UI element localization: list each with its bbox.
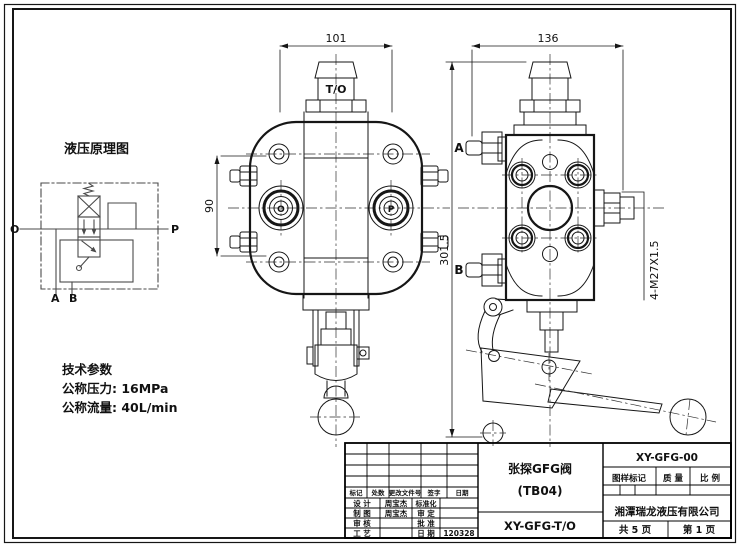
front-top-port-label: T/O	[326, 83, 347, 96]
technical-parameters: 技术参数 公称压力: 16MPa 公称流量: 40L/min	[62, 362, 178, 415]
product-name: 张探GFG阀	[508, 461, 572, 476]
sheet-total: 共 5 页	[619, 524, 652, 536]
side-port-b-label: B	[454, 263, 463, 277]
schematic-port-b-label: B	[69, 292, 77, 305]
schematic-port-o-label: O	[10, 223, 19, 236]
doc-number: XY-GFG-00	[636, 452, 698, 464]
front-dim-width-label: 101	[326, 32, 347, 45]
staff-date-label: 日 期	[417, 528, 435, 538]
side-port-a-label: A	[454, 141, 464, 155]
company-name: 湘潭瑞龙液压有限公司	[615, 505, 720, 518]
rev-col-date: 日期	[456, 488, 470, 497]
weight-label: 质 量	[663, 473, 683, 484]
product-model: (TB04)	[518, 484, 563, 498]
staff-verify-label: 审 定	[417, 508, 435, 518]
schematic-title: 液压原理图	[64, 141, 129, 157]
schematic-port-a-label: A	[51, 292, 60, 305]
side-thread-note: 4-M27X1.5	[648, 241, 661, 301]
staff-process-label: 工 艺	[353, 528, 371, 538]
drawing-frame	[5, 5, 736, 543]
rev-col-sign: 签字	[427, 488, 442, 497]
sheet-number: 第 1 页	[683, 524, 716, 536]
staff-design-label: 设 计	[353, 498, 371, 508]
staff-date-value: 120328	[443, 529, 474, 538]
rev-col-mark: 标记	[349, 488, 364, 497]
schematic-port-p-label: P	[171, 223, 179, 236]
front-port-o-label: O	[277, 205, 285, 215]
tech-title: 技术参数	[62, 362, 113, 377]
rev-col-count: 处数	[371, 488, 386, 497]
tech-flow: 公称流量: 40L/min	[62, 400, 178, 415]
side-dim-width-label: 136	[538, 32, 559, 45]
staff-draft-label: 制 图	[353, 508, 371, 518]
staff-design-name: 周宝杰	[385, 498, 408, 508]
drawing-canvas: 液压原理图 O P A B 技术参数 公称压力: 16MPa 公称流量: 40L…	[0, 0, 740, 547]
side-view: 136 301.5 A B	[438, 32, 716, 447]
front-port-p-label: P	[388, 205, 395, 215]
title-block: 标记 处数 更改文件号 签字 日期 设 计 周宝杰 标准化 制 图 周宝杰 审 …	[345, 443, 731, 538]
staff-standard-label: 标准化	[415, 499, 437, 508]
rev-col-change-doc: 更改文件号	[389, 488, 422, 497]
staff-approve-label: 批 准	[417, 518, 435, 528]
hydraulic-schematic: 液压原理图 O P A B	[10, 141, 179, 305]
drawing-code: XY-GFG-T/O	[504, 519, 576, 533]
staff-check-label: 审 核	[353, 518, 371, 528]
staff-draft-name: 周宝杰	[385, 508, 408, 518]
front-view: 101 90 T/O O P	[203, 32, 450, 447]
front-dim-height-label: 90	[203, 199, 216, 213]
tech-pressure: 公称压力: 16MPa	[62, 381, 168, 396]
mark-label: 图样标记	[612, 473, 647, 484]
engineering-drawing-page: 液压原理图 O P A B 技术参数 公称压力: 16MPa 公称流量: 40L…	[0, 0, 740, 547]
side-dim-height-label: 301.5	[438, 234, 451, 266]
scale-label: 比 例	[700, 473, 720, 484]
